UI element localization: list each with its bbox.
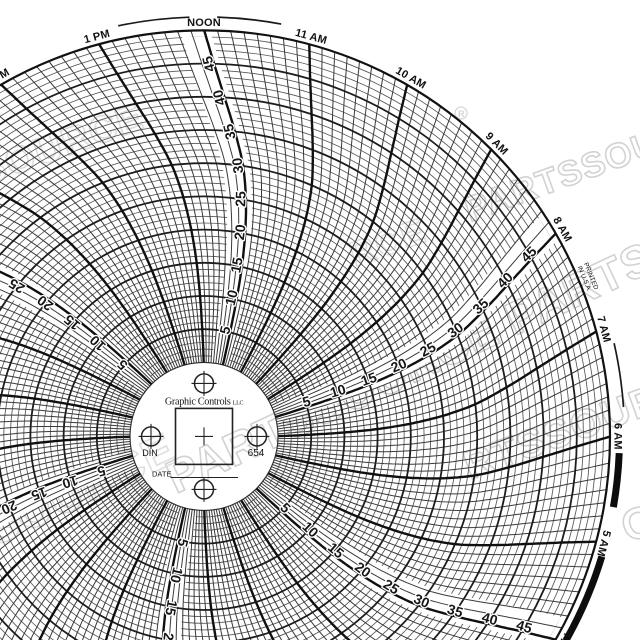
- svg-text:15: 15: [227, 256, 246, 274]
- svg-text:6 AM: 6 AM: [612, 423, 624, 450]
- svg-text:Graphic Controls LLC: Graphic Controls LLC: [165, 397, 244, 408]
- svg-text:15: 15: [162, 599, 181, 617]
- svg-text:25: 25: [232, 191, 248, 207]
- svg-text:R: R: [458, 109, 465, 119]
- svg-text:20: 20: [159, 632, 177, 640]
- svg-text:654: 654: [248, 448, 265, 459]
- svg-text:20: 20: [231, 223, 249, 241]
- svg-text:NOON: NOON: [187, 17, 221, 29]
- svg-text:DIN: DIN: [142, 448, 158, 458]
- svg-text:DATE: DATE: [152, 470, 171, 479]
- svg-text:30: 30: [229, 157, 247, 174]
